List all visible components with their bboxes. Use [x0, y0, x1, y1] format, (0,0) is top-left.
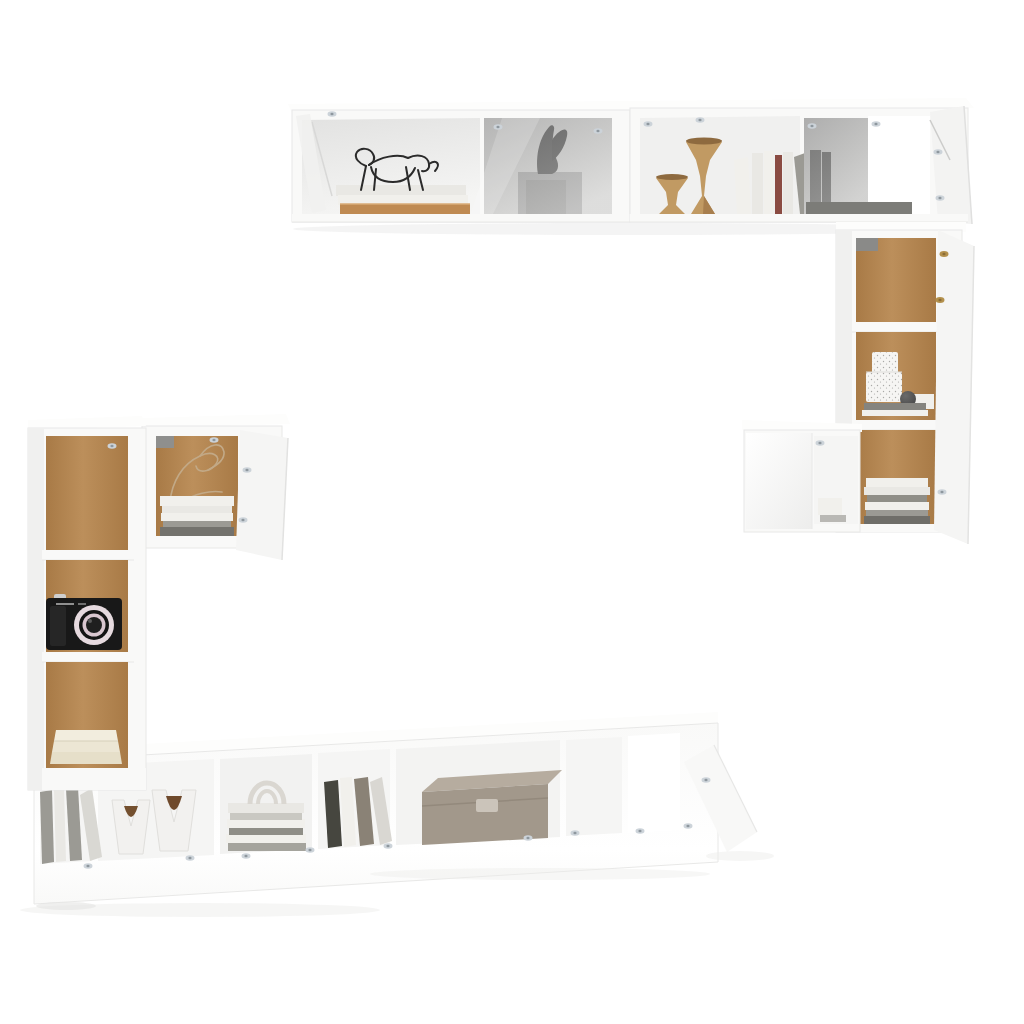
leaning-books — [40, 787, 102, 864]
metal-label-plate — [476, 799, 498, 812]
product-photo-scene — [0, 0, 1024, 1024]
gray-slab-stack — [862, 403, 928, 416]
hinge-fitting — [243, 467, 252, 473]
hinge-fitting — [210, 437, 219, 443]
paper-stack — [50, 730, 122, 764]
hinge-fitting — [108, 443, 117, 449]
hinge-fitting — [384, 843, 393, 849]
book-stack-top-left — [336, 185, 470, 214]
hinge-fitting — [84, 863, 93, 869]
smoked-glass-section — [804, 118, 868, 214]
bench-compartment — [566, 737, 622, 836]
hinge-fitting — [494, 124, 503, 130]
mounting-bracket — [856, 238, 878, 251]
hinge-fitting — [571, 830, 580, 836]
hinge-fitting — [816, 440, 825, 446]
hinge-fitting — [872, 121, 881, 127]
mounting-bracket — [156, 436, 174, 448]
hinge-fitting — [306, 847, 315, 853]
hinge-fitting — [524, 835, 533, 841]
closed-door — [746, 433, 812, 529]
open-door — [236, 430, 288, 560]
hinge-fitting — [239, 517, 248, 523]
wall-cabinet-left-tall — [28, 416, 146, 790]
smoked-glass-door — [470, 118, 612, 216]
open-shelf — [868, 116, 930, 214]
bench-compartment — [628, 733, 680, 833]
hinge-fitting — [936, 195, 945, 201]
gray-slab — [820, 515, 846, 522]
shelf — [42, 652, 134, 662]
hinge-fitting — [934, 149, 943, 155]
shelf — [852, 322, 940, 332]
hinge-fitting — [936, 297, 945, 303]
hinge-fitting — [328, 111, 337, 117]
shelf — [852, 420, 940, 430]
hinge-fitting — [636, 828, 645, 834]
hinge-fitting — [696, 117, 705, 123]
hinge-fitting — [808, 123, 817, 129]
compact-camera — [46, 594, 122, 650]
small-white-box — [818, 498, 842, 515]
camera-lens — [74, 605, 114, 645]
hinge-fitting — [702, 777, 711, 783]
magazine-stack-left — [160, 496, 234, 536]
hinge-fitting — [186, 855, 195, 861]
hinge-fitting — [644, 121, 653, 127]
hinge-fitting — [242, 853, 251, 859]
hinge-fitting — [594, 128, 603, 134]
hinge-fitting — [938, 489, 947, 495]
oak-back-panel — [46, 436, 128, 550]
fabric-storage-box — [422, 770, 562, 845]
magazine-stack-right — [864, 478, 930, 524]
wall-cabinet-right-small — [742, 420, 862, 532]
book-row — [734, 151, 811, 214]
gray-shelf-board — [806, 202, 912, 214]
hinge-fitting — [684, 823, 693, 829]
wall-cabinet-left-small — [142, 414, 290, 560]
open-door — [934, 230, 974, 544]
wall-cabinet-top-right — [630, 106, 972, 224]
shelf — [42, 550, 134, 560]
hinge-fitting — [940, 251, 949, 257]
